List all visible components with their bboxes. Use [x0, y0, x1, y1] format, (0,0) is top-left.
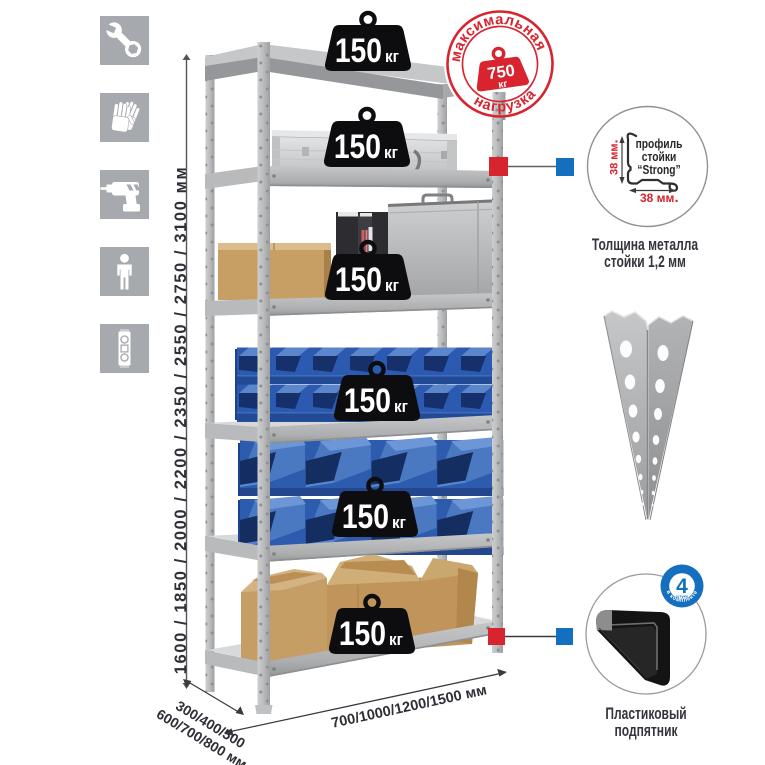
svg-text:стойки 1,2 мм: стойки 1,2 мм [604, 253, 686, 271]
svg-text:“Strong”: “Strong” [637, 164, 680, 177]
svg-text:кг: кг [385, 47, 399, 66]
svg-text:1600 / 1850 / 2000 / 2200 / 23: 1600 / 1850 / 2000 / 2200 / 2350 / 2550 … [172, 166, 190, 675]
svg-text:профиль: профиль [636, 138, 683, 151]
svg-text:700/1000/1200/1500 мм: 700/1000/1200/1500 мм [330, 682, 488, 731]
svg-text:стойки: стойки [642, 151, 677, 164]
svg-text:Толщина металла: Толщина металла [592, 236, 699, 254]
svg-text:150: 150 [335, 30, 382, 69]
svg-text:кг: кг [498, 79, 509, 91]
svg-text:подпятник: подпятник [614, 722, 678, 740]
svg-text:Пластиковый: Пластиковый [605, 705, 686, 723]
svg-text:38 мм.: 38 мм. [640, 189, 679, 206]
